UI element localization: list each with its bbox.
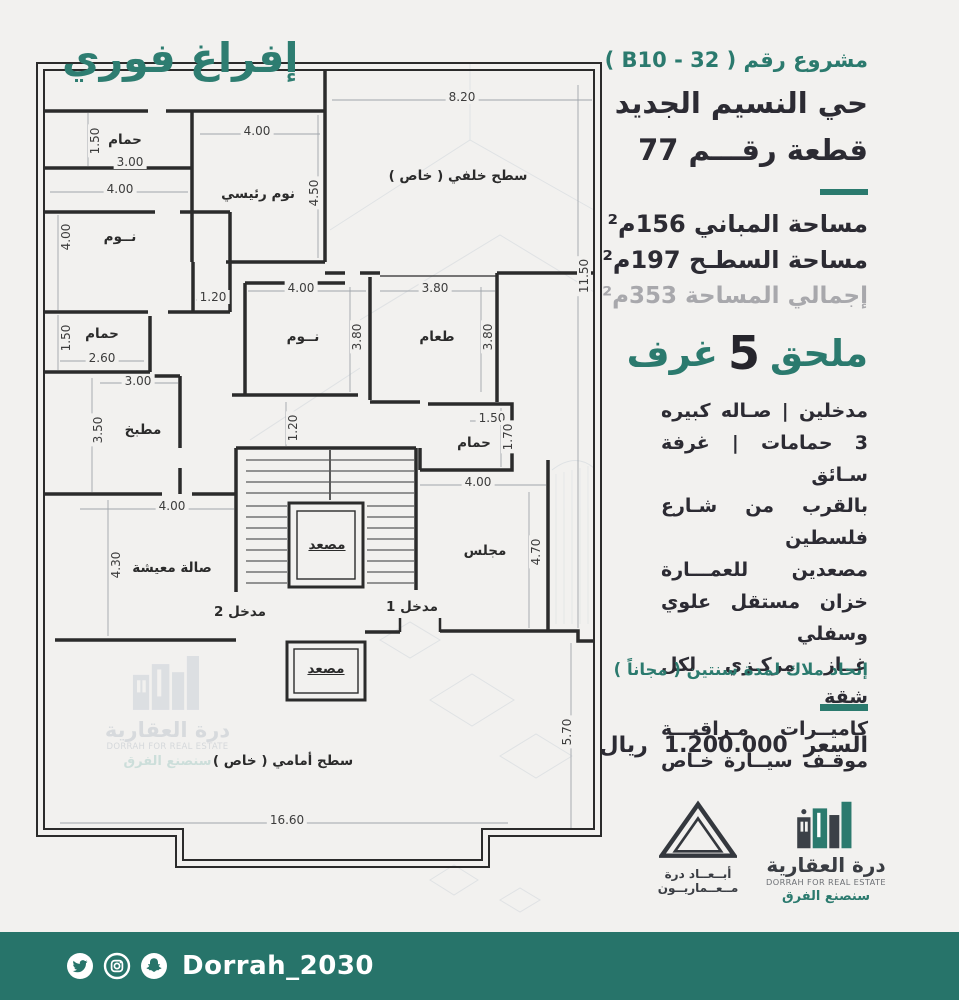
- page-title: إفراغ فوري: [62, 34, 298, 82]
- plan-interior-walls: [44, 70, 594, 641]
- stair-treads: [246, 450, 414, 583]
- twitter-icon: [66, 952, 94, 980]
- social-icons: [66, 952, 168, 980]
- instagram-icon: [103, 952, 131, 980]
- social-handle: Dorrah_2030: [182, 951, 374, 981]
- snapchat-icon: [140, 952, 168, 980]
- floor-plan: [0, 0, 959, 1000]
- flyer-root: { "title": "إفراغ فوري", "panel": { "pro…: [0, 0, 959, 1000]
- blueprint-watermark-lines: [250, 62, 594, 912]
- elevator-shafts: [287, 503, 365, 700]
- footer-bar: Dorrah_2030: [0, 932, 959, 1000]
